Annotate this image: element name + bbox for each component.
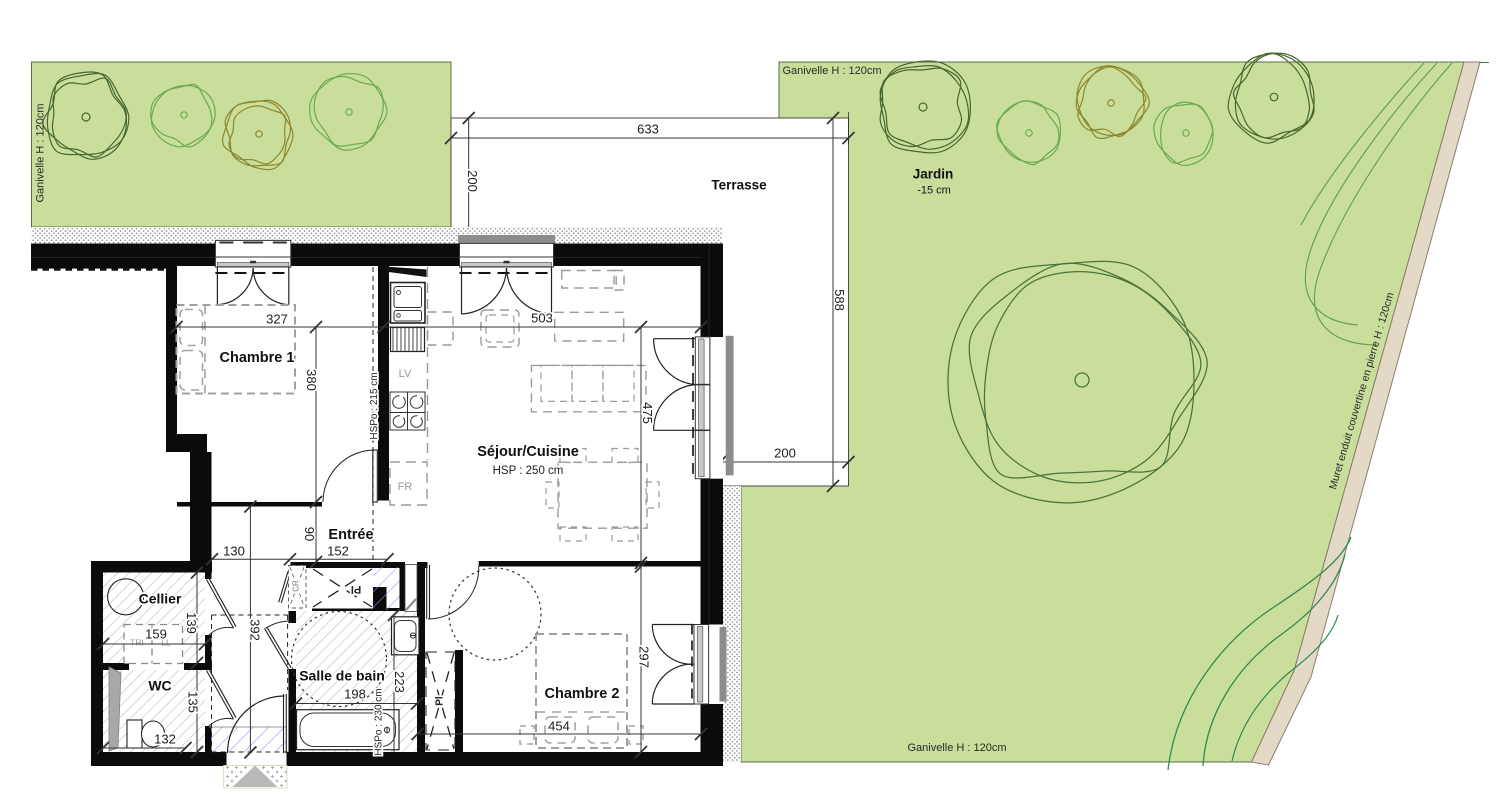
svg-text:Ganivelle H : 120cm: Ganivelle H : 120cm [907,742,1006,754]
svg-text:380: 380 [304,369,319,391]
svg-text:WC: WC [148,678,171,694]
svg-text:TRI: TRI [130,637,144,647]
svg-text:CR: CR [292,580,301,592]
svg-text:Ganivelle H : 120cm: Ganivelle H : 120cm [782,65,881,77]
svg-text:475: 475 [640,402,655,424]
svg-text:Chambre 2: Chambre 2 [545,686,620,702]
svg-text:Ganivelle H : 120cm: Ganivelle H : 120cm [34,103,46,202]
svg-text:198: 198 [344,686,366,701]
svg-text:132: 132 [154,731,176,746]
svg-text:LV: LV [399,368,412,380]
svg-text:Entrée: Entrée [328,527,373,543]
svg-text:588: 588 [832,289,847,311]
svg-text:FR: FR [398,481,413,493]
svg-text:159: 159 [145,626,167,641]
svg-text:HSPo : 215 cm: HSPo : 215 cm [369,372,380,439]
svg-text:Terrasse: Terrasse [711,178,767,193]
svg-text:392: 392 [248,619,263,641]
svg-text:200: 200 [465,170,480,192]
svg-text:200: 200 [774,445,796,460]
svg-text:Pl: Pl [351,583,361,595]
svg-text:Cellier: Cellier [139,591,182,607]
svg-text:152: 152 [327,543,349,558]
svg-text:Pl: Pl [435,696,446,706]
svg-text:Chambre 1: Chambre 1 [220,350,295,366]
svg-text:454: 454 [548,718,570,733]
svg-text:135: 135 [186,691,201,713]
svg-text:HSPo : 230 cm: HSPo : 230 cm [374,688,385,755]
svg-text:Jardin: Jardin [913,167,954,182]
svg-text:Séjour/Cuisine: Séjour/Cuisine [477,444,579,460]
svg-text:90: 90 [302,527,317,541]
svg-text:HSP : 250 cm: HSP : 250 cm [493,465,564,477]
svg-text:297: 297 [637,646,652,668]
svg-text:Salle de bain: Salle de bain [299,668,385,684]
svg-text:130: 130 [223,543,245,558]
svg-text:223: 223 [392,671,407,693]
svg-text:139: 139 [184,612,199,634]
svg-text:327: 327 [266,311,288,326]
svg-text:633: 633 [637,121,659,136]
svg-text:-15 cm: -15 cm [917,184,951,196]
svg-text:503: 503 [531,310,553,325]
